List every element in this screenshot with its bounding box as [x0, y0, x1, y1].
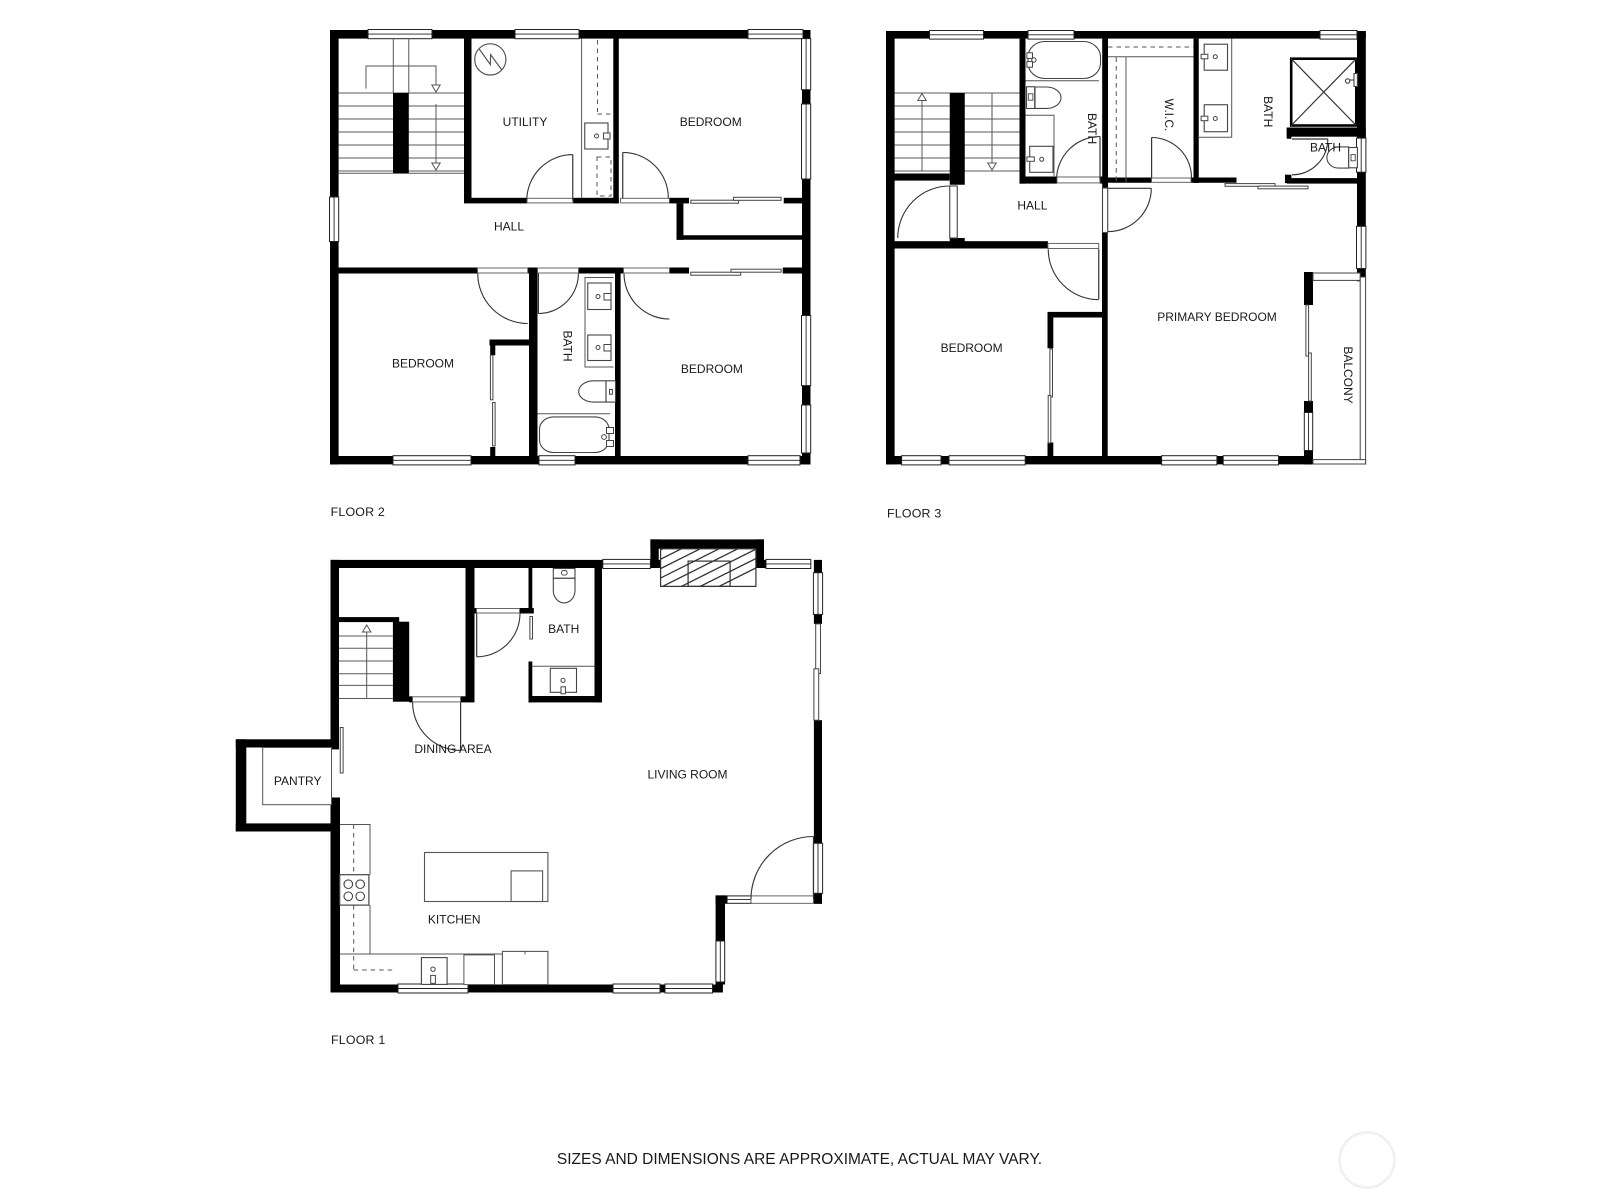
- svg-text:BALCONY: BALCONY: [1341, 346, 1355, 403]
- svg-text:DINING AREA: DINING AREA: [414, 742, 491, 756]
- svg-text:BATH: BATH: [561, 330, 575, 361]
- svg-text:BEDROOM: BEDROOM: [681, 362, 743, 376]
- svg-text:KITCHEN: KITCHEN: [428, 912, 481, 926]
- svg-text:BATH: BATH: [1261, 96, 1275, 127]
- svg-text:FLOOR 1: FLOOR 1: [331, 1033, 385, 1047]
- svg-text:BATH: BATH: [1310, 141, 1341, 155]
- svg-text:FLOOR 2: FLOOR 2: [331, 505, 385, 519]
- svg-text:SIZES AND DIMENSIONS ARE APPRO: SIZES AND DIMENSIONS ARE APPROXIMATE, AC…: [557, 1151, 1042, 1168]
- svg-text:UTILITY: UTILITY: [503, 115, 548, 129]
- svg-text:BEDROOM: BEDROOM: [941, 341, 1003, 355]
- svg-text:BEDROOM: BEDROOM: [392, 356, 454, 370]
- svg-text:PRIMARY BEDROOM: PRIMARY BEDROOM: [1157, 310, 1277, 324]
- svg-text:BATH: BATH: [548, 622, 579, 636]
- svg-text:HALL: HALL: [494, 220, 524, 234]
- svg-text:W.I.C.: W.I.C.: [1162, 99, 1176, 132]
- svg-text:BEDROOM: BEDROOM: [680, 115, 742, 129]
- svg-text:FLOOR 3: FLOOR 3: [887, 507, 941, 521]
- svg-text:HALL: HALL: [1017, 199, 1047, 213]
- svg-text:BATH: BATH: [1085, 113, 1099, 144]
- svg-text:LIVING ROOM: LIVING ROOM: [647, 767, 727, 781]
- svg-text:PANTRY: PANTRY: [274, 774, 322, 788]
